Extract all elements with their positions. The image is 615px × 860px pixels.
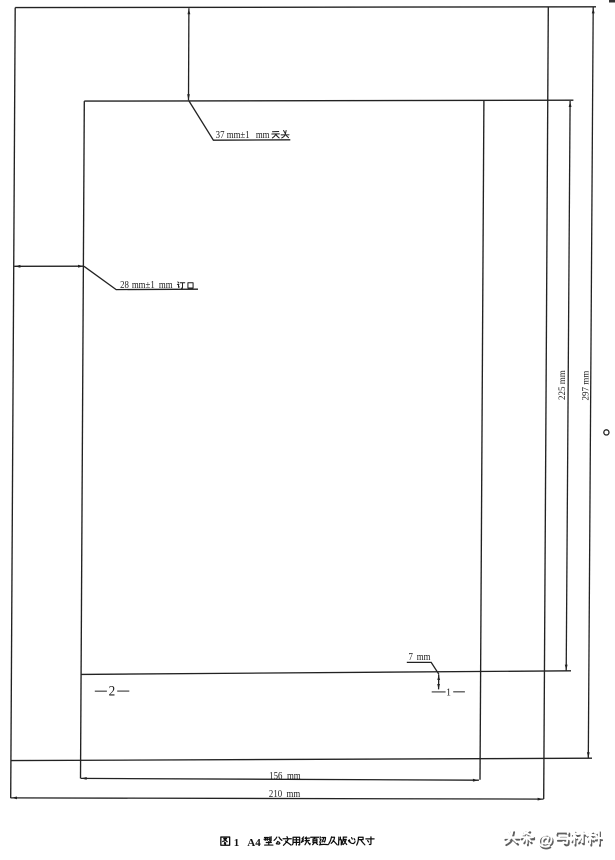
svg-text:37: 37 bbox=[216, 131, 225, 142]
svg-text:210: 210 bbox=[269, 790, 282, 801]
svg-text:mm: mm bbox=[287, 790, 301, 801]
svg-text:mm: mm bbox=[256, 131, 270, 142]
svg-text:@: @ bbox=[538, 832, 554, 849]
svg-text:mm: mm bbox=[287, 772, 301, 783]
svg-text:225 mm: 225 mm bbox=[557, 370, 567, 400]
svg-text:1: 1 bbox=[446, 687, 451, 699]
svg-text:7: 7 bbox=[408, 652, 413, 663]
svg-text:28: 28 bbox=[120, 281, 129, 292]
svg-text:156: 156 bbox=[269, 772, 282, 783]
svg-text:mm: mm bbox=[417, 652, 431, 663]
svg-text:mm: mm bbox=[159, 281, 173, 292]
svg-text:2: 2 bbox=[109, 683, 116, 700]
svg-text:297 mm: 297 mm bbox=[581, 371, 591, 401]
svg-text:mm±1: mm±1 bbox=[132, 281, 155, 292]
svg-text:A4: A4 bbox=[247, 837, 261, 849]
svg-text:1: 1 bbox=[234, 837, 240, 849]
svg-text:mm±1: mm±1 bbox=[227, 131, 250, 142]
